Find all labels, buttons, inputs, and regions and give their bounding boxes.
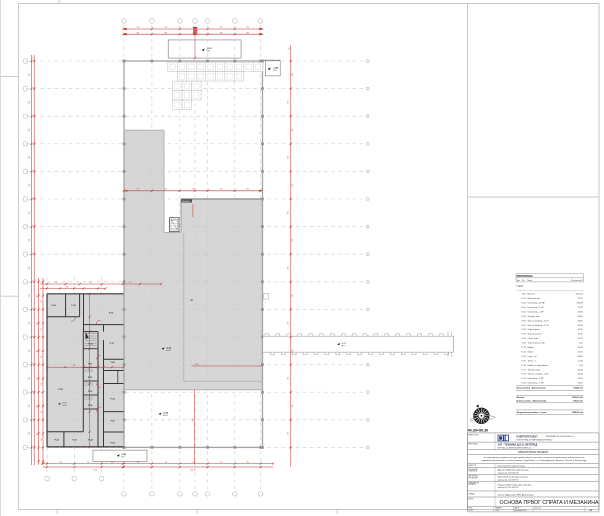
svg-text:190: 190 xyxy=(41,328,43,331)
svg-text:2685,50 m2: 2685,50 m2 xyxy=(572,412,584,414)
svg-text:P-04: P-04 xyxy=(522,311,527,313)
svg-text:Јелена Марјановић, ВКВ, Архите: Јелена Марјановић, ВКВ, Архитектура xyxy=(498,493,535,496)
svg-text:Neto površina - Administracija: Neto površina - Administracija xyxy=(517,387,547,390)
svg-text:P-15: P-15 xyxy=(522,360,527,362)
svg-text:688: 688 xyxy=(246,32,249,34)
svg-text:Sala za kurseve: Sala za kurseve xyxy=(528,334,543,336)
svg-text:P-11: P-11 xyxy=(522,343,527,345)
svg-text:МЕЗ.: МЕЗ. xyxy=(342,345,346,347)
svg-text:750: 750 xyxy=(292,294,294,297)
svg-text:750: 750 xyxy=(29,184,31,187)
svg-text:750: 750 xyxy=(137,188,140,190)
svg-text:750: 750 xyxy=(220,462,223,464)
svg-text:H=4.50: H=4.50 xyxy=(62,405,67,407)
svg-text:750: 750 xyxy=(192,188,195,190)
svg-text:190: 190 xyxy=(41,300,43,303)
svg-text:2165: 2165 xyxy=(195,364,199,366)
svg-text:750: 750 xyxy=(165,27,168,29)
svg-text:292.5: 292.5 xyxy=(93,469,97,471)
svg-text:Kancelarija - 2 NP: Kancelarija - 2 NP xyxy=(528,307,545,309)
svg-text:190: 190 xyxy=(41,383,43,386)
svg-text:+3.60: +3.60 xyxy=(166,347,172,349)
svg-text:750: 750 xyxy=(288,432,290,435)
svg-text:750: 750 xyxy=(292,239,294,242)
svg-text:375: 375 xyxy=(36,349,38,352)
svg-text:Tehnička soba: Tehnička soba xyxy=(528,369,542,371)
svg-text:+8.10: +8.10 xyxy=(342,343,347,345)
svg-text:Sala za druženje - 10 %: Sala za druženje - 10 % xyxy=(528,325,549,327)
svg-text:7,00: 7,00 xyxy=(579,365,584,367)
svg-text:ОДГОВОРНИ: ОДГОВОРНИ xyxy=(468,476,477,478)
svg-text:29,30: 29,30 xyxy=(578,351,584,353)
svg-text:375: 375 xyxy=(89,282,92,284)
svg-text:Čajna kuhinja: Čajna kuhinja xyxy=(528,328,541,331)
svg-text:64,85: 64,85 xyxy=(578,356,584,358)
svg-text:2: 2 xyxy=(491,416,492,418)
svg-text:БЕОГРАД, бул. АРСЕНИЈА ЧАРНОЈЕ: БЕОГРАД, бул. АРСЕНИЈА ЧАРНОЈЕВИЋА 159 xyxy=(498,447,532,450)
svg-text:ОДГОВОРНИ: ОДГОВОРНИ xyxy=(468,469,477,471)
svg-text:+4.85: +4.85 xyxy=(273,66,279,69)
svg-text:+3.60: +3.60 xyxy=(62,403,67,405)
svg-text:лиценца бр. 200 0451 03: лиценца бр. 200 0451 03 xyxy=(498,472,519,474)
svg-text:H=8.10: H=8.10 xyxy=(163,415,168,417)
svg-text:Svečana sala: Svečana sala xyxy=(528,316,541,318)
svg-text:360: 360 xyxy=(73,365,76,367)
svg-text:190: 190 xyxy=(41,355,43,358)
svg-text:750: 750 xyxy=(111,462,114,464)
svg-text:750: 750 xyxy=(29,349,31,352)
svg-text:Драгана Ђурђевић, дипл.инж.арх: Драгана Ђурђевић, дипл.инж.арх xyxy=(498,469,529,472)
svg-text:H=4.50: H=4.50 xyxy=(166,350,171,352)
svg-text:11,40: 11,40 xyxy=(578,360,584,362)
svg-text:40: 40 xyxy=(43,462,45,464)
svg-text:Toalet - 2: Toalet - 2 xyxy=(528,359,537,362)
svg-text:N01: N01 xyxy=(522,294,527,296)
svg-text:750: 750 xyxy=(288,377,290,380)
svg-text:750: 750 xyxy=(292,73,294,76)
svg-text:P-16: P-16 xyxy=(522,365,527,367)
svg-text:БРОЈ: БРОЈ xyxy=(469,508,473,510)
svg-text:Hodnik sa stepeništem: Hodnik sa stepeništem xyxy=(528,364,549,367)
svg-text:Trafo stanica za ap.: Trafo stanica za ap. xyxy=(528,342,546,345)
svg-text:Sala za sastanke - 30 S: Sala za sastanke - 30 S xyxy=(528,373,550,376)
svg-text:750: 750 xyxy=(87,462,90,464)
svg-text:Горан Чекелић, дипл.инж.арх: Горан Чекелић, дипл.инж.арх xyxy=(498,464,525,467)
svg-text:+4.85: +4.85 xyxy=(121,453,126,456)
svg-text:750: 750 xyxy=(165,188,168,190)
svg-text:ГРАЂЕВИНАРСТВО И КОНСАЛТИНГ а: ГРАЂЕВИНАРСТВО И КОНСАЛТИНГ а.д. xyxy=(546,435,576,438)
svg-text:Naziv: Naziv xyxy=(528,280,533,282)
svg-text:+0.00: +0.00 xyxy=(163,413,169,415)
svg-text:P-03: P-03 xyxy=(522,307,527,309)
svg-text:750: 750 xyxy=(220,27,223,29)
svg-text:лиценца бр. 310 9452 03: лиценца бр. 310 9452 03 xyxy=(498,487,519,489)
svg-text:P-17: P-17 xyxy=(522,369,527,371)
svg-text:Kancelarija - 1 NP: Kancelarija - 1 NP xyxy=(528,383,545,385)
svg-text:I sprat: I sprat xyxy=(517,284,524,287)
svg-text:административним логистичким с: административним логистичким службама, н… xyxy=(482,460,587,462)
svg-text:724,85 m2: 724,85 m2 xyxy=(573,387,583,390)
svg-text:688: 688 xyxy=(220,32,223,34)
svg-text:лиценца бр. 300 4299 03: лиценца бр. 300 4299 03 xyxy=(498,479,519,481)
svg-text:Bruto površina - Administracij: Bruto površina - Administracija xyxy=(517,399,548,402)
svg-text:НАРУЧИЛАЦ: НАРУЧИЛАЦ xyxy=(468,442,478,445)
svg-text:750: 750 xyxy=(29,405,31,408)
svg-text:P-05: P-05 xyxy=(522,316,527,318)
svg-text:375: 375 xyxy=(36,377,38,380)
svg-text:P-06: P-06 xyxy=(522,320,527,322)
svg-text:390,98: 390,98 xyxy=(577,303,584,305)
svg-text:750: 750 xyxy=(29,432,31,435)
svg-text:7,20: 7,20 xyxy=(579,343,584,345)
svg-text:Гордана Којић Томић, дипл.грађ: Гордана Којић Томић, дипл.грађ.инж. xyxy=(498,483,533,486)
svg-text:190: 190 xyxy=(41,438,43,441)
svg-text:750: 750 xyxy=(29,73,31,76)
svg-text:750: 750 xyxy=(292,184,294,187)
svg-text:PROSTORIJA: PROSTORIJA xyxy=(517,275,533,278)
svg-text:750: 750 xyxy=(292,129,294,132)
svg-text:ДИРЕКТОР: ДИРЕКТОР xyxy=(468,465,476,467)
svg-text:22,60: 22,60 xyxy=(578,347,584,349)
svg-text:42,45: 42,45 xyxy=(578,334,584,336)
svg-text:750: 750 xyxy=(246,462,249,464)
svg-text:750: 750 xyxy=(292,405,294,408)
svg-text:УРБАНИСТИЧКИ ПРОЈЕКАТ: УРБАНИСТИЧКИ ПРОЈЕКАТ xyxy=(518,451,549,454)
svg-text:децембар 2010.: децембар 2010. xyxy=(515,510,528,512)
svg-text:44,70: 44,70 xyxy=(578,369,584,371)
svg-text:29,60: 29,60 xyxy=(578,383,584,385)
svg-text:P-01: P-01 xyxy=(522,298,527,300)
svg-text:P-07: P-07 xyxy=(522,325,527,327)
svg-text:P-08: P-08 xyxy=(522,329,527,331)
svg-text:Mezanin: Mezanin xyxy=(517,397,526,399)
svg-text:37,75: 37,75 xyxy=(578,298,584,300)
svg-text:P-14: P-14 xyxy=(522,356,527,358)
svg-text:1: 1 xyxy=(481,405,482,407)
svg-text:ОБРАДА: ОБРАДА xyxy=(468,493,474,496)
svg-text:750: 750 xyxy=(288,211,290,214)
svg-text:Mašinska sala: Mašinska sala xyxy=(528,298,542,300)
svg-text:750: 750 xyxy=(246,27,249,29)
svg-text:ЦРТЕЖ: ЦРТЕЖ xyxy=(468,498,474,500)
svg-text:750: 750 xyxy=(29,101,31,104)
svg-text:750: 750 xyxy=(29,156,31,159)
svg-text:750: 750 xyxy=(59,462,62,464)
svg-text:2005,20 m2: 2005,20 m2 xyxy=(572,397,584,399)
svg-text:за изградњу терминала дистрибу: за изградњу терминала дистрибутивног цен… xyxy=(483,457,585,459)
svg-text:86,40: 86,40 xyxy=(578,374,584,376)
svg-text:750: 750 xyxy=(29,322,31,325)
svg-text:750: 750 xyxy=(29,294,31,297)
svg-text:91,15: 91,15 xyxy=(578,338,584,340)
svg-text:Br.: Br. xyxy=(523,279,526,282)
svg-text:55: 55 xyxy=(32,57,34,59)
svg-text:МЕЗ.: МЕЗ. xyxy=(121,456,125,458)
svg-text:375: 375 xyxy=(36,432,38,435)
svg-text:85,00: 85,00 xyxy=(578,316,584,318)
svg-text:40.30+90.30: 40.30+90.30 xyxy=(468,429,489,433)
svg-text:750: 750 xyxy=(288,267,290,270)
svg-text:750: 750 xyxy=(288,101,290,104)
svg-text:САРАДНИК НА: САРАДНИК НА xyxy=(468,481,479,484)
svg-text:375: 375 xyxy=(36,294,38,297)
svg-text:P-13: P-13 xyxy=(522,351,527,353)
svg-text:275: 275 xyxy=(55,282,58,284)
svg-text:1:200: 1:200 xyxy=(495,510,499,512)
svg-text:688: 688 xyxy=(165,32,168,34)
svg-text:Kancelarija - 2 NP: Kancelarija - 2 NP xyxy=(528,378,545,380)
svg-text:Број листа: Број листа xyxy=(534,507,541,510)
svg-text:P-10: P-10 xyxy=(522,338,527,340)
svg-text:750: 750 xyxy=(165,462,168,464)
svg-text:Mezanin: Mezanin xyxy=(528,294,536,296)
svg-text:МЕЗ.: МЕЗ. xyxy=(273,70,278,72)
svg-text:Hodnik: Hodnik xyxy=(528,347,534,349)
svg-text:750: 750 xyxy=(137,27,140,29)
svg-text:750: 750 xyxy=(192,419,194,422)
svg-text:Kancelarija - 40 NP: Kancelarija - 40 NP xyxy=(528,303,546,305)
svg-text:ЕНЕРГОПРОЈЕКТ: ЕНЕРГОПРОЈЕКТ xyxy=(517,436,539,438)
svg-text:P-09: P-09 xyxy=(522,334,527,336)
svg-text:85,00: 85,00 xyxy=(578,320,584,322)
svg-text:750: 750 xyxy=(29,239,31,242)
svg-text:P-12: P-12 xyxy=(522,347,527,349)
svg-text:780,30 m2: 780,30 m2 xyxy=(573,400,583,402)
svg-text:2005,20: 2005,20 xyxy=(576,294,584,296)
svg-text:ЈАТ - ТЕХНИКА Д.О.О. БЕОГРАД: ЈАТ - ТЕХНИКА Д.О.О. БЕОГРАД xyxy=(498,444,538,447)
svg-text:750: 750 xyxy=(29,267,31,270)
svg-text:750: 750 xyxy=(288,156,290,159)
svg-text:188: 188 xyxy=(66,286,69,288)
svg-text:Površina (m2): Površina (m2) xyxy=(571,279,583,282)
svg-text:Sala za druženje - 10 %: Sala za druženje - 10 % xyxy=(528,320,549,322)
svg-text:ПРОЈЕКТУ: ПРОЈЕКТУ xyxy=(468,484,476,486)
svg-text:750: 750 xyxy=(29,211,31,214)
svg-text:270: 270 xyxy=(129,282,132,284)
svg-text:ОСНОВА ПРВОГ СПРАТА И МЕЗАНИНА: ОСНОВА ПРВОГ СПРАТА И МЕЗАНИНА xyxy=(500,500,599,506)
svg-text:P-18: P-18 xyxy=(522,374,527,376)
svg-text:85,00: 85,00 xyxy=(578,325,584,327)
svg-text:P-19: P-19 xyxy=(522,378,527,380)
svg-text:750: 750 xyxy=(220,188,223,190)
svg-text:Lager - ao: Lager - ao xyxy=(528,356,538,358)
svg-text:216.65: 216.65 xyxy=(190,469,195,471)
svg-text:Spr.: Spr. xyxy=(517,279,521,282)
svg-text:375: 375 xyxy=(36,405,38,408)
svg-text:750: 750 xyxy=(246,188,249,190)
svg-text:88: 88 xyxy=(289,48,291,50)
svg-text:Šoderi: Šoderi xyxy=(528,350,534,353)
svg-text:23,15: 23,15 xyxy=(578,378,584,380)
svg-text:НОВИ БЕОГРАД, БУЛЕВАР МИХАИЛА: НОВИ БЕОГРАД, БУЛЕВАР МИХАИЛА ПУПИНА 12 xyxy=(517,439,553,442)
svg-text:Ukupna bruto površina - I spra: Ukupna bruto površina - I sprat xyxy=(517,411,547,414)
svg-text:РАЗМЕРА: РАЗМЕРА xyxy=(495,507,502,510)
svg-text:42,45: 42,45 xyxy=(578,329,584,331)
svg-text:ИНВЕСТИТОР: ИНВЕСТИТОР xyxy=(468,434,478,436)
svg-text:Kancelarija - 2 NP: Kancelarija - 2 NP xyxy=(528,311,545,313)
svg-text:P-20: P-20 xyxy=(522,383,527,385)
svg-text:35,84: 35,84 xyxy=(578,311,584,313)
svg-text:750: 750 xyxy=(137,462,140,464)
svg-text:190: 190 xyxy=(41,411,43,414)
svg-text:Časna soba: Časna soba xyxy=(528,337,540,340)
svg-text:72,35: 72,35 xyxy=(578,307,584,309)
svg-text:750: 750 xyxy=(288,322,290,325)
svg-text:750: 750 xyxy=(292,349,294,352)
svg-text:375: 375 xyxy=(36,322,38,325)
svg-text:Мила Илић Јанић, дипл.инж.арх: Мила Илић Јанић, дипл.инж.арх xyxy=(498,476,528,479)
svg-text:688: 688 xyxy=(137,32,140,34)
svg-text:МЕЗ.: МЕЗ. xyxy=(207,50,212,52)
svg-text:750: 750 xyxy=(29,129,31,132)
svg-text:P-02: P-02 xyxy=(522,303,527,305)
svg-text:750: 750 xyxy=(29,377,31,380)
svg-text:11-322: 11-322 xyxy=(469,510,474,512)
svg-text:750: 750 xyxy=(192,462,195,464)
